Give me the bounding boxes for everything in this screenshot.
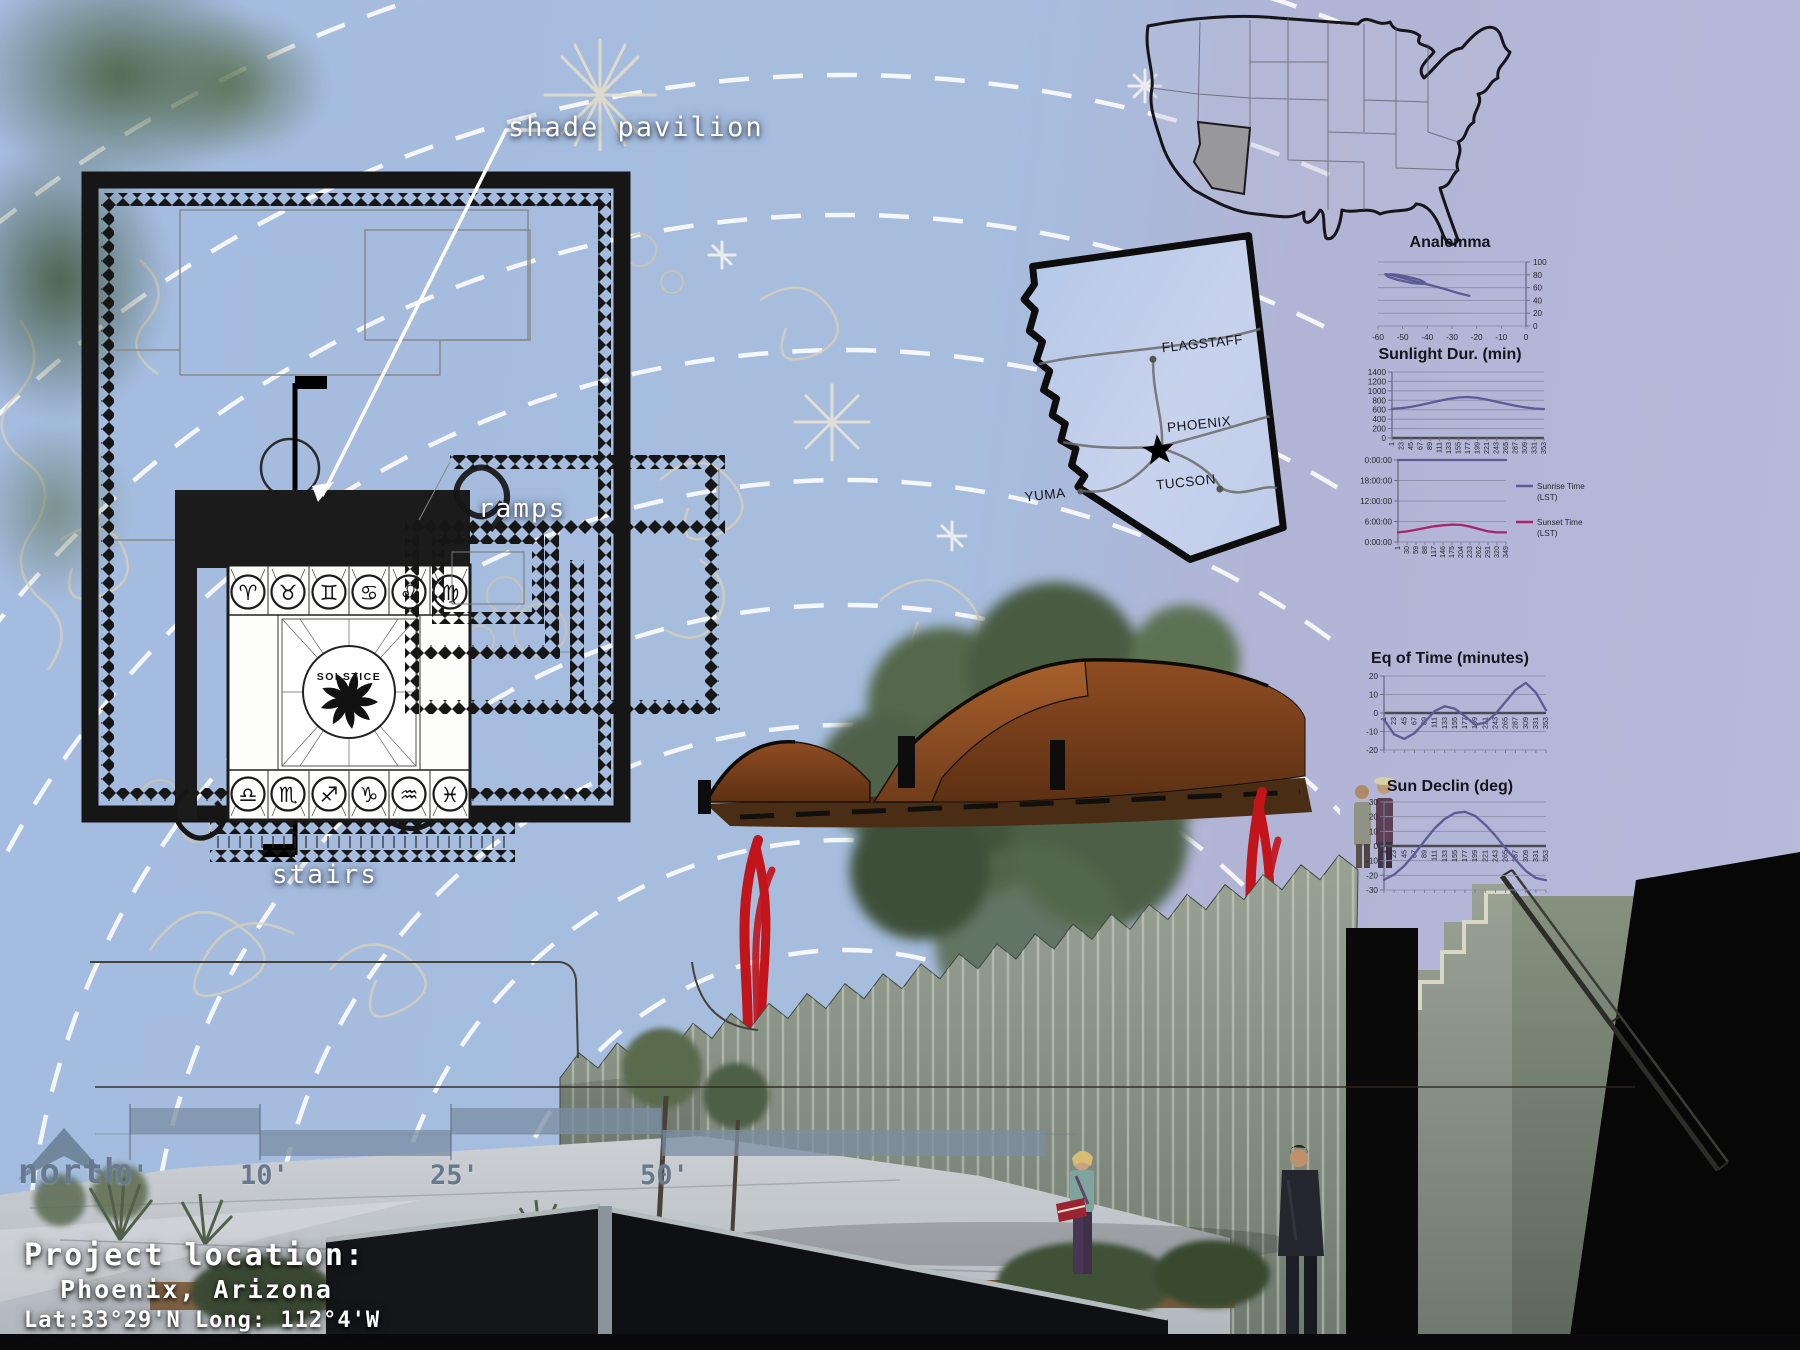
x-tick-label: 243 [1490, 717, 1499, 729]
site-plan: ♈ ♉ ♊ ♋ ♌ ♍ ♎ ♏ ♐ ♑ ♒ ♓ [60, 100, 760, 1110]
scale-bar [95, 1100, 1095, 1164]
legend-label: Sunset Time [1537, 518, 1583, 527]
zodiac-glyph: ♒ [400, 783, 419, 807]
zodiac-glyph: ♓ [441, 783, 460, 807]
y-tick-label: 0 [1381, 434, 1386, 443]
y-tick-label: -20 [1366, 871, 1378, 880]
y-tick-label: 0 [1373, 709, 1378, 718]
y-tick-label: 30 [1369, 798, 1379, 807]
series-sunlight-duration-(min) [1392, 397, 1544, 409]
y-tick-label: 18:00:00 [1360, 477, 1392, 486]
x-tick-label: 23 [1389, 717, 1398, 725]
x-tick-label: 331 [1531, 850, 1540, 862]
chart-title-eq-of-time: Eq of Time (minutes) [1350, 650, 1550, 668]
y-tick-label: 0:00:00 [1365, 456, 1393, 465]
y-tick-label: 100 [1533, 258, 1547, 267]
y-tick-label: 200 [1372, 425, 1386, 434]
stairs-hatch [210, 822, 515, 862]
x-tick-label: 133 [1440, 717, 1449, 729]
y-tick-label: 400 [1372, 415, 1386, 424]
y-tick-label: 10 [1369, 827, 1379, 836]
y-tick-label: 20 [1369, 813, 1379, 822]
x-tick-label: 320 [1492, 546, 1501, 558]
x-tick-label: 243 [1490, 850, 1499, 862]
x-tick-label: 353 [1541, 850, 1550, 862]
stairs-label: stairs [272, 860, 378, 890]
zodiac-glyph: ♏ [279, 783, 298, 807]
x-tick-label: 309 [1521, 717, 1530, 729]
x-tick-label: -30 [1446, 333, 1458, 342]
right-terrace-structure [1418, 852, 1800, 1350]
x-tick-label: 155 [1450, 850, 1459, 862]
legend-label: (LST) [1537, 493, 1558, 502]
equation-of-time-chart: -20-100102012345678911113315517719922124… [1352, 668, 1557, 786]
y-tick-label: 1200 [1368, 377, 1387, 386]
zodiac-glyph: ♐ [320, 783, 339, 807]
x-tick-label: -20 [1471, 333, 1483, 342]
x-tick-label: 89 [1425, 442, 1434, 450]
y-tick-label: -10 [1366, 728, 1378, 737]
project-location-title: Project location: [24, 1238, 369, 1273]
y-tick-label: 12:00:00 [1360, 497, 1392, 506]
scale-tick-25: 25' [430, 1160, 479, 1191]
sunlight-plot: 0200400600800100012001400123456789111133… [1368, 368, 1548, 454]
x-tick-label: 1 [1393, 546, 1402, 550]
arizona-outline [1020, 235, 1286, 574]
x-tick-label: 204 [1456, 546, 1465, 558]
x-tick-label: 117 [1429, 546, 1438, 557]
project-location-city: Phoenix, Arizona [24, 1275, 369, 1304]
y-tick-label: -20 [1366, 746, 1378, 755]
chart-title-analemma: Analemma [1350, 234, 1550, 252]
y-tick-label: 40 [1533, 296, 1543, 305]
legend-label: (LST) [1537, 529, 1558, 538]
y-tick-label: 60 [1533, 284, 1543, 293]
solstice-text: SOLSTICE [317, 671, 382, 683]
scale-tick-10: 10' [240, 1160, 289, 1191]
x-tick-label: 155 [1450, 717, 1459, 729]
scale-tick-50: 50' [640, 1160, 689, 1191]
x-tick-label: 175 [1447, 546, 1456, 558]
y-tick-label: 0 [1373, 842, 1378, 851]
x-tick-label: 221 [1480, 850, 1489, 862]
x-tick-label: 177 [1460, 850, 1469, 862]
x-tick-label: 291 [1483, 546, 1492, 558]
y-tick-label: -30 [1366, 886, 1378, 895]
series-analemma-loop [1385, 274, 1469, 296]
scale-tick-0: 0' [116, 1160, 149, 1191]
x-tick-label: 1 [1379, 850, 1388, 854]
x-tick-label: -10 [1495, 333, 1507, 342]
x-tick-label: 30 [1402, 546, 1411, 554]
x-tick-label: 309 [1521, 850, 1530, 862]
x-tick-label: 67 [1409, 717, 1418, 725]
city-label-yuma: YUMA [1024, 485, 1066, 504]
x-tick-label: 45 [1399, 850, 1408, 858]
zodiac-glyph: ♊ [320, 581, 339, 605]
x-tick-label: 67 [1416, 442, 1425, 450]
x-tick-label: 199 [1470, 850, 1479, 862]
site-road-lines [90, 962, 758, 1058]
project-location-block: Project location: Phoenix, Arizona Lat:3… [24, 1238, 369, 1333]
legend-label: Sunrise Time [1537, 482, 1585, 491]
analemma-chart: 020406080100-60-50-40-30-20-100 [1358, 252, 1563, 352]
x-tick-label: 349 [1501, 546, 1510, 558]
x-tick-label: 45 [1406, 442, 1415, 450]
x-tick-label: 111 [1430, 717, 1439, 728]
y-tick-label: 1000 [1368, 387, 1387, 396]
y-tick-label: 800 [1372, 396, 1386, 405]
x-tick-label: 0 [1524, 333, 1529, 342]
presentation-board: ♈ ♉ ♊ ♋ ♌ ♍ ♎ ♏ ♐ ♑ ♒ ♓ [0, 0, 1800, 1350]
x-tick-label: 111 [1430, 850, 1439, 861]
shade-pavilion-label: shade pavilion [508, 112, 764, 143]
sunrise-sunset-chart: 0:00:006:00:0012:00:0018:00:000:00:00130… [1340, 452, 1580, 582]
x-tick-label: 331 [1531, 717, 1540, 729]
x-tick-label: 265 [1501, 717, 1510, 729]
y-tick-label: 1400 [1368, 368, 1387, 377]
x-tick-label: -60 [1372, 333, 1384, 342]
x-tick-label: 59 [1411, 546, 1420, 554]
x-tick-label: 146 [1438, 546, 1447, 558]
x-tick-label: 287 [1511, 717, 1520, 729]
x-tick-label: 353 [1541, 717, 1550, 729]
ground-line [95, 1086, 1635, 1088]
analemma-plot: 020406080100-60-50-40-30-20-100 [1372, 258, 1547, 342]
y-tick-label: 0:00:00 [1365, 538, 1393, 547]
project-location-coords: Lat:33°29'N Long: 112°4'W [24, 1308, 369, 1333]
zodiac-glyph: ♋ [360, 581, 379, 605]
x-tick-label: 45 [1399, 717, 1408, 725]
x-tick-label: 262 [1474, 546, 1483, 558]
x-tick-label: -40 [1421, 333, 1433, 342]
x-tick-label: 233 [1465, 546, 1474, 558]
x-tick-label: -50 [1397, 333, 1409, 342]
arizona-map: FLAGSTAFF PHOENIX TUCSON YUMA [991, 217, 1326, 596]
y-tick-label: 6:00:00 [1365, 518, 1393, 527]
zodiac-glyph: ♑ [360, 783, 379, 807]
x-tick-label: 23 [1389, 850, 1398, 858]
y-tick-label: 20 [1533, 309, 1543, 318]
x-tick-label: 89 [1420, 850, 1429, 858]
chart-title-sunlight: Sunlight Dur. (min) [1350, 346, 1550, 364]
zodiac-glyph: ♉ [279, 581, 298, 605]
x-tick-label: 133 [1440, 850, 1449, 862]
x-tick-label: 23 [1397, 442, 1406, 450]
plan-tree-circle [261, 439, 319, 497]
ground-shadow-strip [0, 1334, 1800, 1350]
series-sunset-time-(lst) [1398, 525, 1506, 533]
eq-of-time-plot: -20-100102012345678911113315517719922124… [1366, 672, 1550, 755]
y-tick-label: 0 [1533, 322, 1538, 331]
y-tick-label: 10 [1369, 691, 1379, 700]
sun-times-plot: 0:00:006:00:0012:00:0018:00:000:00:00130… [1360, 456, 1585, 558]
y-tick-label: 600 [1372, 406, 1386, 415]
y-tick-label: 80 [1533, 271, 1543, 280]
us-map [1128, 2, 1528, 252]
y-tick-label: 20 [1369, 672, 1379, 681]
x-tick-label: 1 [1387, 442, 1396, 446]
series-equation-of-time-(min) [1384, 683, 1546, 739]
y-tick-label: -10 [1366, 857, 1378, 866]
sun-declination-chart: -30-20-100102030123456789111133155177199… [1352, 796, 1557, 916]
zodiac-glyph: ♈ [239, 581, 258, 605]
x-tick-label: 88 [1420, 546, 1429, 554]
ramps-label: ramps [478, 494, 566, 524]
chart-title-sun-declin: Sun Declin (deg) [1350, 778, 1550, 796]
sun-declination-plot: -30-20-100102030123456789111133155177199… [1366, 798, 1550, 895]
wall-doorway-void [1346, 928, 1418, 1350]
zodiac-glyph: ♎ [239, 783, 258, 807]
shade-canopy-corten [698, 660, 1312, 828]
